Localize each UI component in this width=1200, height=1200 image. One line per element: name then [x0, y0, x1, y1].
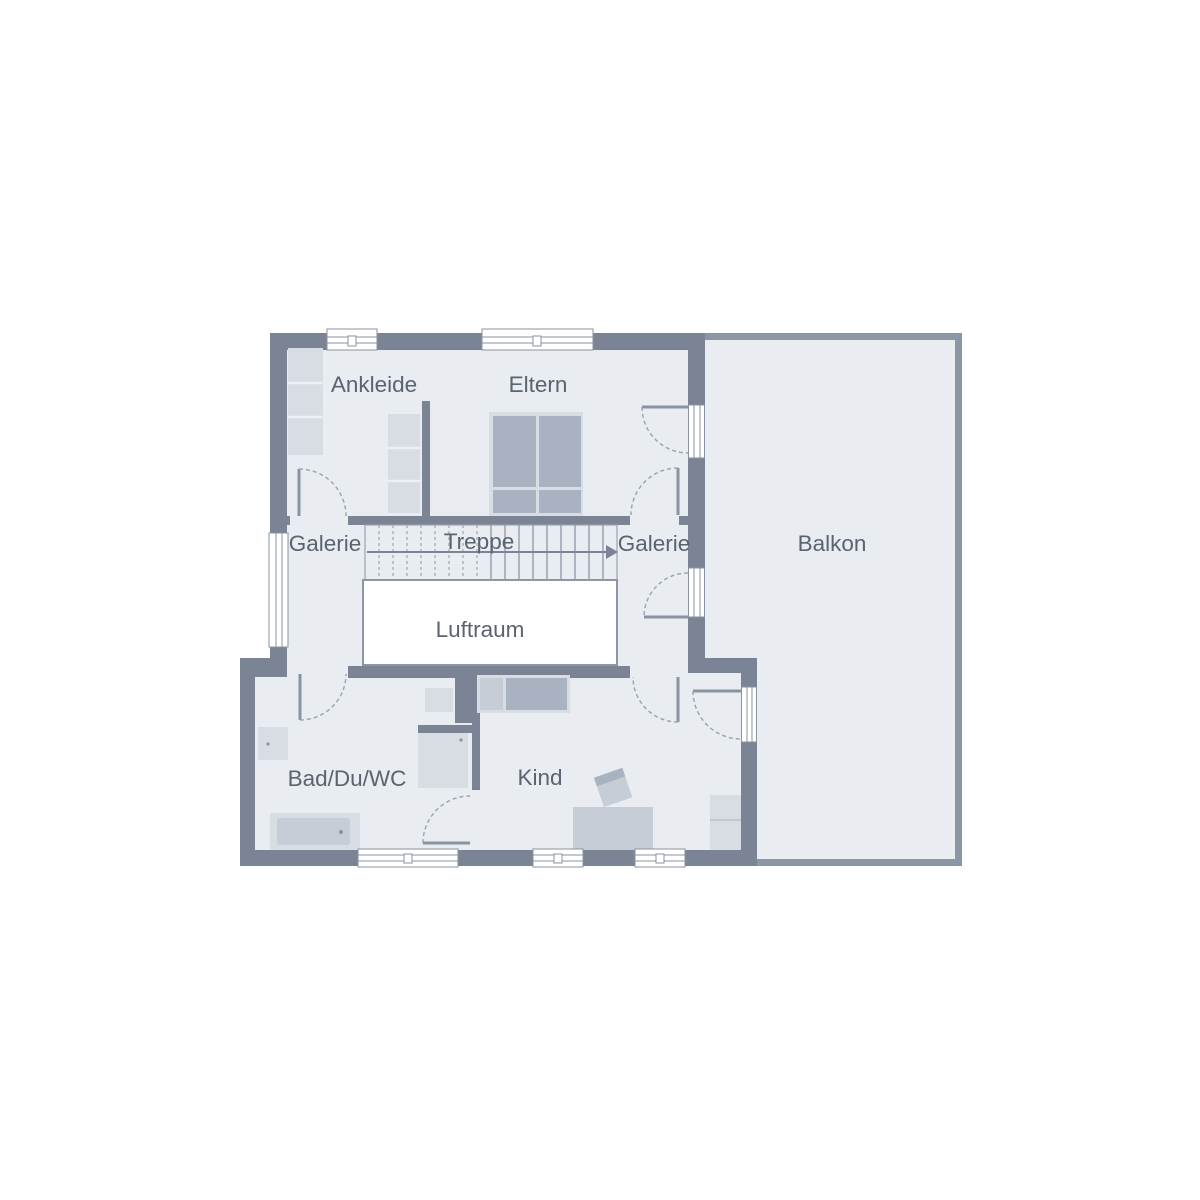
bathtub [270, 813, 360, 850]
room-label-treppe: Treppe [444, 529, 514, 554]
window-icon-eltern [482, 329, 593, 350]
wall-kind-right-lower [741, 742, 757, 866]
room-label-balkon: Balkon [798, 531, 867, 556]
closet [388, 414, 420, 513]
window-icon-ankleide [327, 329, 377, 350]
wardrobe [288, 348, 323, 455]
room-label-eltern: Eltern [509, 372, 568, 397]
balcony-wall-bottom [757, 859, 962, 866]
wall-strip-top-stub-right [679, 516, 688, 525]
wall-step-horizontal [688, 658, 757, 673]
wall-bath-stub-horizontal [418, 725, 472, 733]
balcony-door-panel-kind [742, 687, 757, 742]
room-label-bad: Bad/Du/WC [288, 766, 407, 791]
wall-kind-right-upper [741, 673, 757, 687]
wall-right-upper [688, 333, 705, 405]
window-icon-kind-2 [635, 849, 685, 867]
floor-plan-canvas: Ankleide Eltern Galerie Treppe Galerie B… [0, 0, 1200, 1200]
wall-ankleide-partition [422, 401, 430, 516]
window-icon-galerie-left [269, 533, 288, 647]
washbasin-top [425, 688, 453, 712]
wall-galerie-stub-left [270, 516, 290, 525]
balcony-door-panel-galerie [689, 568, 705, 617]
room-label-galerie-links: Galerie [289, 531, 362, 556]
balcony-wall-right [955, 333, 962, 866]
wall-bath-stub-vertical [455, 677, 472, 723]
shelf [710, 795, 741, 850]
room-label-ankleide: Ankleide [331, 372, 417, 397]
wall-right-mid [688, 458, 705, 568]
room-label-kind: Kind [517, 765, 562, 790]
room-label-galerie-rechts: Galerie [618, 531, 691, 556]
balcony-wall-top [705, 333, 962, 340]
washbasin-left [258, 727, 288, 760]
wall-right-lower [688, 617, 705, 658]
wall-left-upper [270, 350, 287, 533]
window-icon-bad [358, 849, 458, 867]
floor-plan: Ankleide Eltern Galerie Treppe Galerie B… [0, 0, 1200, 1200]
room-label-luftraum: Luftraum [436, 617, 525, 642]
balcony-door-panel-eltern [689, 405, 705, 458]
kind-bed [477, 675, 570, 713]
wall-bath-left [240, 658, 255, 866]
wall-strip-top [348, 516, 630, 525]
window-icon-kind-1 [533, 849, 583, 867]
desk [573, 807, 653, 850]
double-bed [489, 412, 583, 516]
shower [418, 733, 468, 788]
